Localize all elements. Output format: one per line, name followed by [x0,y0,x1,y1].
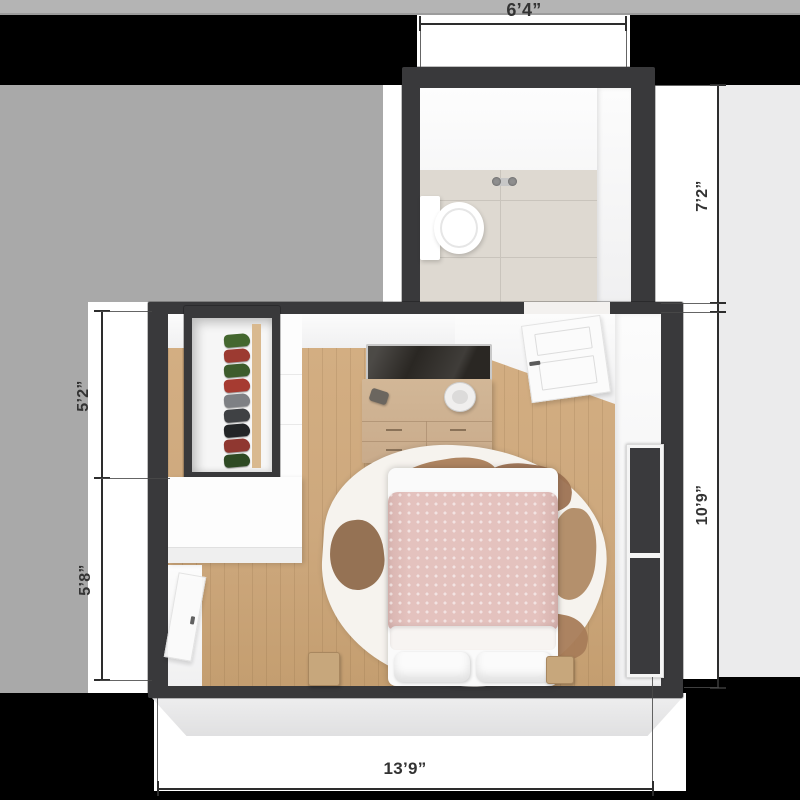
toilet-seat [440,208,478,248]
door-panel-groove [538,355,597,391]
bottom-wall-skirt [152,698,682,736]
extension-line [652,677,653,788]
shoe-rack [224,334,250,467]
bed [388,468,558,686]
closet [192,318,272,472]
wardrobe [168,477,302,562]
stool-left [308,652,340,686]
dimension-label-left-upper: 5’2” [69,366,99,426]
dimension-line-bottom [158,788,654,790]
duvet [388,492,558,630]
drawer-line [362,421,492,422]
drawer-line [362,441,492,442]
bathroom-right-wall-face [597,88,631,302]
shoe [223,363,250,378]
shoe [223,438,250,453]
dimension-tick [419,16,421,31]
shoe [223,453,250,468]
sheet-fold [390,626,556,650]
extension-line [655,85,719,86]
dimension-tick [652,781,654,796]
dimension-label-right-lower: 10’9” [688,467,718,543]
margin-left [88,302,148,693]
speaker [444,382,476,412]
extension-line [100,478,170,479]
stool-right [546,656,574,684]
cabinet-seam [278,374,302,375]
tv [366,344,492,383]
margin-left-sliver [383,85,402,313]
toilet-bowl [434,202,484,254]
shoe [223,333,250,348]
drawer-handle [450,429,466,431]
cabinet-seam [278,424,302,425]
extension-line [661,303,719,304]
shoe [223,378,250,393]
dimension-line-top [421,23,627,25]
ceiling-light-bulb [492,177,501,186]
dimension-label-left-lower: 5’8” [71,550,101,610]
extension-line [684,687,719,688]
drawer-handle [386,429,402,431]
dimension-label-top: 6’4” [454,0,594,20]
extension-line [100,311,152,312]
dimension-tick [157,781,159,796]
pillow-right [476,652,552,682]
backdrop-gray-column [0,303,88,693]
shoe [223,423,250,438]
backdrop-light-column [718,85,800,677]
extension-line [661,312,719,313]
window-glass [630,448,660,674]
floor-plan-image: 6’4” 7’2” 10’9” 5’2” 5’8” 13’9” [0,0,800,800]
ceiling-light-bulb [508,177,517,186]
dimension-label-bottom: 13’9” [330,758,480,780]
window-divider [630,553,660,558]
shoe-shelf [252,324,261,468]
dimension-tick [625,16,627,31]
tile-grout-horizontal [420,200,597,201]
wardrobe-front [168,547,302,563]
tile-grout-horizontal [420,257,597,258]
door-handle [190,616,195,625]
tall-cabinet [278,314,302,477]
window [626,444,664,678]
extension-line [157,698,158,788]
shoe [223,348,250,363]
dimension-label-right-upper: 7’2” [688,166,718,226]
shoe [223,408,250,423]
backdrop-gray-block [0,85,383,303]
pillow-left [394,652,470,682]
tile-grout-vertical [500,170,501,302]
dimension-line-left [101,311,103,681]
backdrop-top-line [0,13,800,15]
bathroom [420,88,631,302]
shoe [223,393,250,408]
extension-line [100,680,152,681]
door-panel-groove [534,326,593,356]
backdrop-top-strip [0,0,800,13]
bathroom-door [521,315,611,403]
